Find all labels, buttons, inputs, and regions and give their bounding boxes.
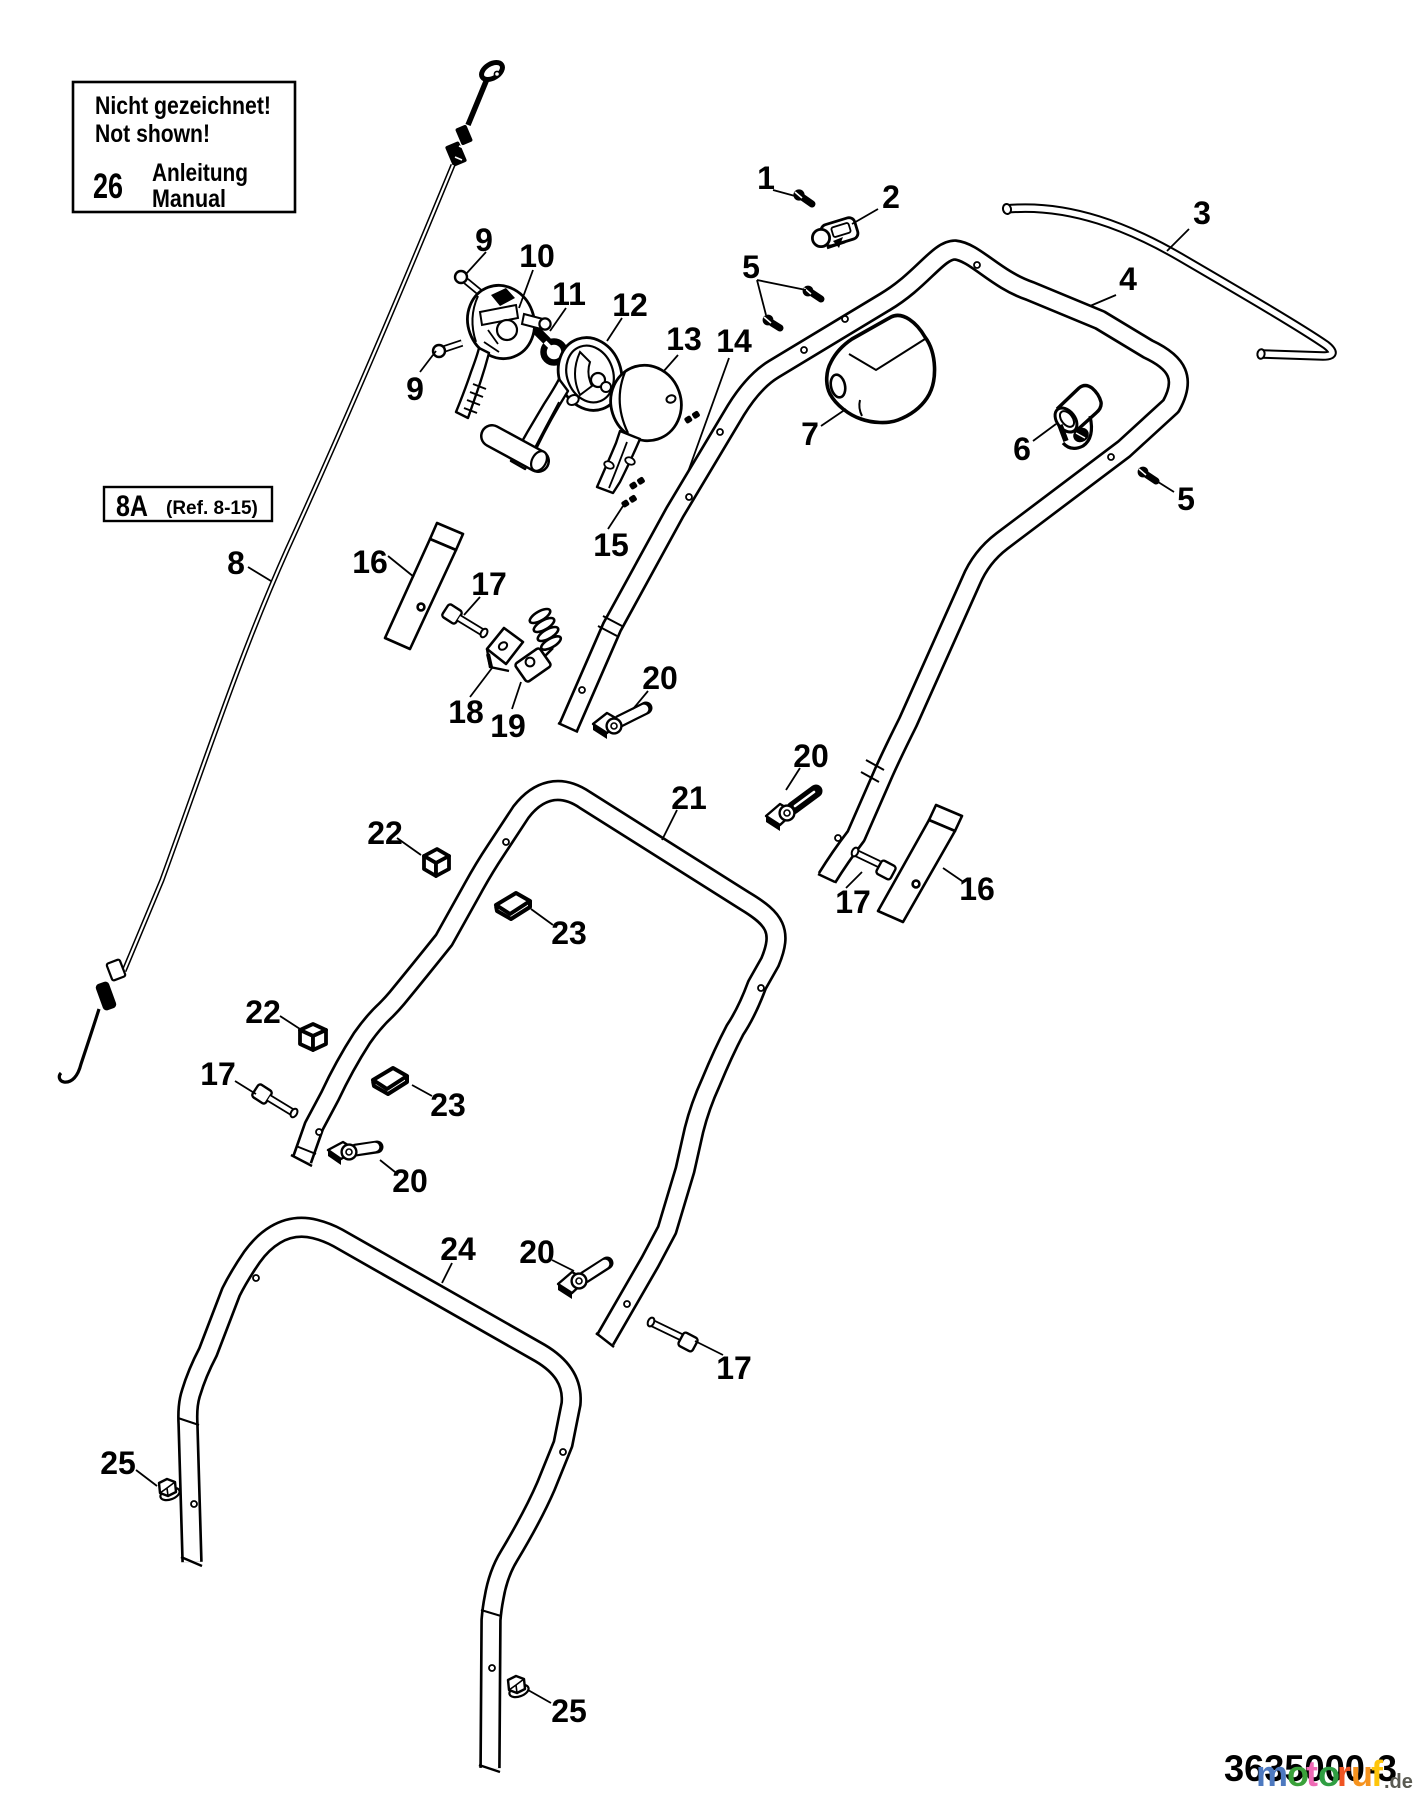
svg-text:r: r <box>1337 1753 1351 1794</box>
svg-text:15: 15 <box>593 527 629 563</box>
svg-text:20: 20 <box>642 660 678 696</box>
svg-text:1: 1 <box>757 160 775 196</box>
svg-text:t: t <box>1306 1753 1318 1794</box>
svg-text:16: 16 <box>352 544 388 580</box>
svg-text:8: 8 <box>227 545 245 581</box>
svg-text:10: 10 <box>519 238 555 274</box>
svg-text:5: 5 <box>742 249 760 285</box>
svg-text:5: 5 <box>1177 481 1195 517</box>
svg-text:Not shown!: Not shown! <box>95 120 210 148</box>
svg-text:24: 24 <box>440 1231 476 1267</box>
svg-text:9: 9 <box>406 371 424 407</box>
svg-text:7: 7 <box>801 416 819 452</box>
svg-text:13: 13 <box>666 321 702 357</box>
svg-text:12: 12 <box>612 287 648 323</box>
svg-text:3: 3 <box>1193 195 1211 231</box>
svg-text:25: 25 <box>100 1445 136 1481</box>
svg-text:16: 16 <box>959 871 995 907</box>
svg-text:20: 20 <box>519 1234 555 1270</box>
svg-text:(Ref. 8-15): (Ref. 8-15) <box>166 498 258 519</box>
svg-text:21: 21 <box>671 780 707 816</box>
svg-text:Anleitung: Anleitung <box>152 159 248 187</box>
svg-text:20: 20 <box>793 738 829 774</box>
svg-text:Nicht gezeichnet!: Nicht gezeichnet! <box>95 92 271 120</box>
svg-text:2: 2 <box>882 179 900 215</box>
svg-text:23: 23 <box>430 1087 466 1123</box>
svg-text:22: 22 <box>367 815 403 851</box>
svg-text:m: m <box>1256 1753 1288 1794</box>
svg-text:17: 17 <box>471 566 507 602</box>
svg-text:u: u <box>1351 1753 1373 1794</box>
svg-text:.de: .de <box>1384 1771 1413 1793</box>
svg-text:4: 4 <box>1119 261 1137 297</box>
svg-text:11: 11 <box>552 276 586 312</box>
svg-text:17: 17 <box>716 1350 752 1386</box>
svg-text:22: 22 <box>245 994 281 1030</box>
svg-text:8A: 8A <box>116 490 148 523</box>
svg-text:Manual: Manual <box>152 185 226 213</box>
svg-text:6: 6 <box>1013 431 1031 467</box>
svg-text:17: 17 <box>835 884 871 920</box>
svg-text:25: 25 <box>551 1693 587 1729</box>
svg-text:18: 18 <box>448 694 484 730</box>
svg-text:14: 14 <box>716 323 752 359</box>
svg-text:23: 23 <box>551 915 587 951</box>
svg-text:26: 26 <box>93 167 123 206</box>
svg-text:17: 17 <box>200 1056 236 1092</box>
svg-text:19: 19 <box>490 708 526 744</box>
svg-text:20: 20 <box>392 1163 428 1199</box>
svg-text:f: f <box>1371 1753 1384 1794</box>
svg-text:9: 9 <box>475 222 493 258</box>
